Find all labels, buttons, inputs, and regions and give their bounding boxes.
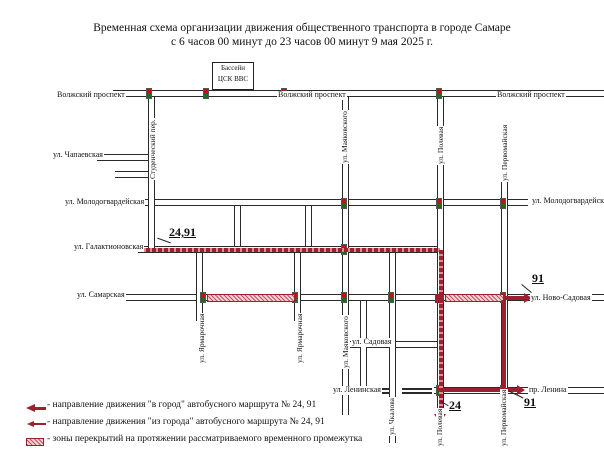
traffic-light-icon bbox=[200, 292, 206, 303]
route-arrow-91-pr-lenina bbox=[517, 385, 525, 395]
traffic-light-icon bbox=[500, 198, 506, 209]
transport-scheme-map: Временная схема организации движения общ… bbox=[0, 0, 604, 468]
road-yarmarochnaya-1 bbox=[196, 253, 203, 321]
annotation-routes-24-91: 24,91 bbox=[168, 225, 197, 240]
label-volzhsky-prospekt-mid: Волжский проспект bbox=[277, 91, 347, 100]
label-studencheskiy-per: Студенческий пер. bbox=[149, 118, 157, 180]
closure-zone-novo-sadovaya bbox=[445, 294, 504, 302]
pool-name-line1: Бассейн bbox=[221, 64, 245, 72]
route-line-leninskaya bbox=[438, 388, 504, 392]
page-title-line2: с 6 часов 00 минут до 23 часов 00 минут … bbox=[0, 36, 604, 48]
traffic-light-icon bbox=[388, 292, 394, 303]
label-samarskaya: ул. Самарская bbox=[76, 291, 126, 300]
label-novo-sadovaya: ул. Ново-Садовая bbox=[530, 294, 592, 303]
label-leninskaya: ул. Ленинская bbox=[332, 386, 382, 395]
legend-item-closure-zones: - зоны перекрытий на протяжении рассматр… bbox=[47, 434, 362, 444]
pool-landmark-box: Бассейн ЦСК ВВС bbox=[212, 62, 254, 90]
legend-item-to-city: - направление движения "в город" автобус… bbox=[47, 400, 316, 410]
legend-closure-zone-icon bbox=[26, 438, 44, 446]
legend-arrow-from-city-shaft bbox=[33, 423, 46, 425]
legend-item-from-city: - направление движения "из города" автоб… bbox=[47, 417, 325, 427]
road-leninskaya-dash-2 bbox=[402, 388, 432, 394]
label-galaktionovskaya: ул. Галактионовская bbox=[73, 243, 144, 252]
road-chapaevskaya-stub bbox=[115, 171, 151, 178]
closure-zone-samarskaya bbox=[207, 294, 295, 302]
road-molodogvardeyskaya bbox=[131, 199, 528, 206]
label-yarmarochnaya-1: ул. Ярмарочная bbox=[198, 313, 206, 364]
label-chapaevskaya: ул. Чапаевская bbox=[52, 151, 104, 160]
label-sadovaya: ул. Садовая bbox=[351, 338, 393, 347]
traffic-light-icon bbox=[146, 88, 152, 99]
pool-name-line2: ЦСК ВВС bbox=[218, 75, 248, 83]
road-yarmarochnaya-2 bbox=[294, 253, 301, 321]
annotation-route-91-pr-lenina: 91 bbox=[523, 395, 537, 410]
traffic-light-icon bbox=[203, 88, 209, 99]
route-junction-polevaya-novo-sadovaya bbox=[435, 294, 444, 303]
route-line-galaktionovskaya bbox=[140, 248, 440, 252]
road-unnamed-b bbox=[305, 206, 312, 246]
label-molodogvardeyskaya-right: ул. Молодогвардейская bbox=[531, 197, 604, 206]
label-mayakovskogo-bottom: ул. Маяковского bbox=[342, 315, 350, 369]
road-unnamed-a bbox=[234, 206, 241, 246]
label-polevaya-top: ул. Полевая bbox=[437, 126, 445, 165]
traffic-light-icon bbox=[436, 198, 442, 209]
traffic-light-icon bbox=[341, 292, 347, 303]
label-chkalova: ул. Чкалова bbox=[388, 397, 396, 436]
route-line-novo-sadovaya bbox=[504, 296, 525, 300]
label-yarmarochnaya-2: ул. Ярмарочная bbox=[296, 313, 304, 364]
label-volzhsky-prospekt-right: Волжский проспект bbox=[496, 91, 566, 100]
legend-arrow-to-city-shaft bbox=[34, 407, 46, 410]
label-pervomayskaya-bottom: ул. Первомайская bbox=[500, 389, 508, 447]
page-title-line1: Временная схема организации движения общ… bbox=[0, 22, 604, 34]
route-line-pervomayskaya bbox=[502, 300, 506, 388]
traffic-light-icon bbox=[436, 88, 442, 99]
label-molodogvardeyskaya-left: ул. Молодогвардейская bbox=[64, 198, 145, 207]
traffic-light-icon bbox=[341, 198, 347, 209]
label-volzhsky-prospekt-left: Волжский проспект bbox=[56, 91, 126, 100]
label-pervomayskaya-top: ул. Первомайская bbox=[501, 124, 509, 182]
label-polevaya-bottom: ул. Полевая bbox=[436, 408, 444, 447]
road-chapaevskaya bbox=[97, 154, 151, 161]
label-mayakovskogo-top: ул. Маяковского bbox=[341, 110, 349, 164]
annotation-route-24: 24 bbox=[448, 398, 462, 413]
annotation-route-91-novo-sadovaya: 91 bbox=[531, 271, 545, 286]
label-pr-lenina: пр. Ленина bbox=[528, 386, 568, 395]
